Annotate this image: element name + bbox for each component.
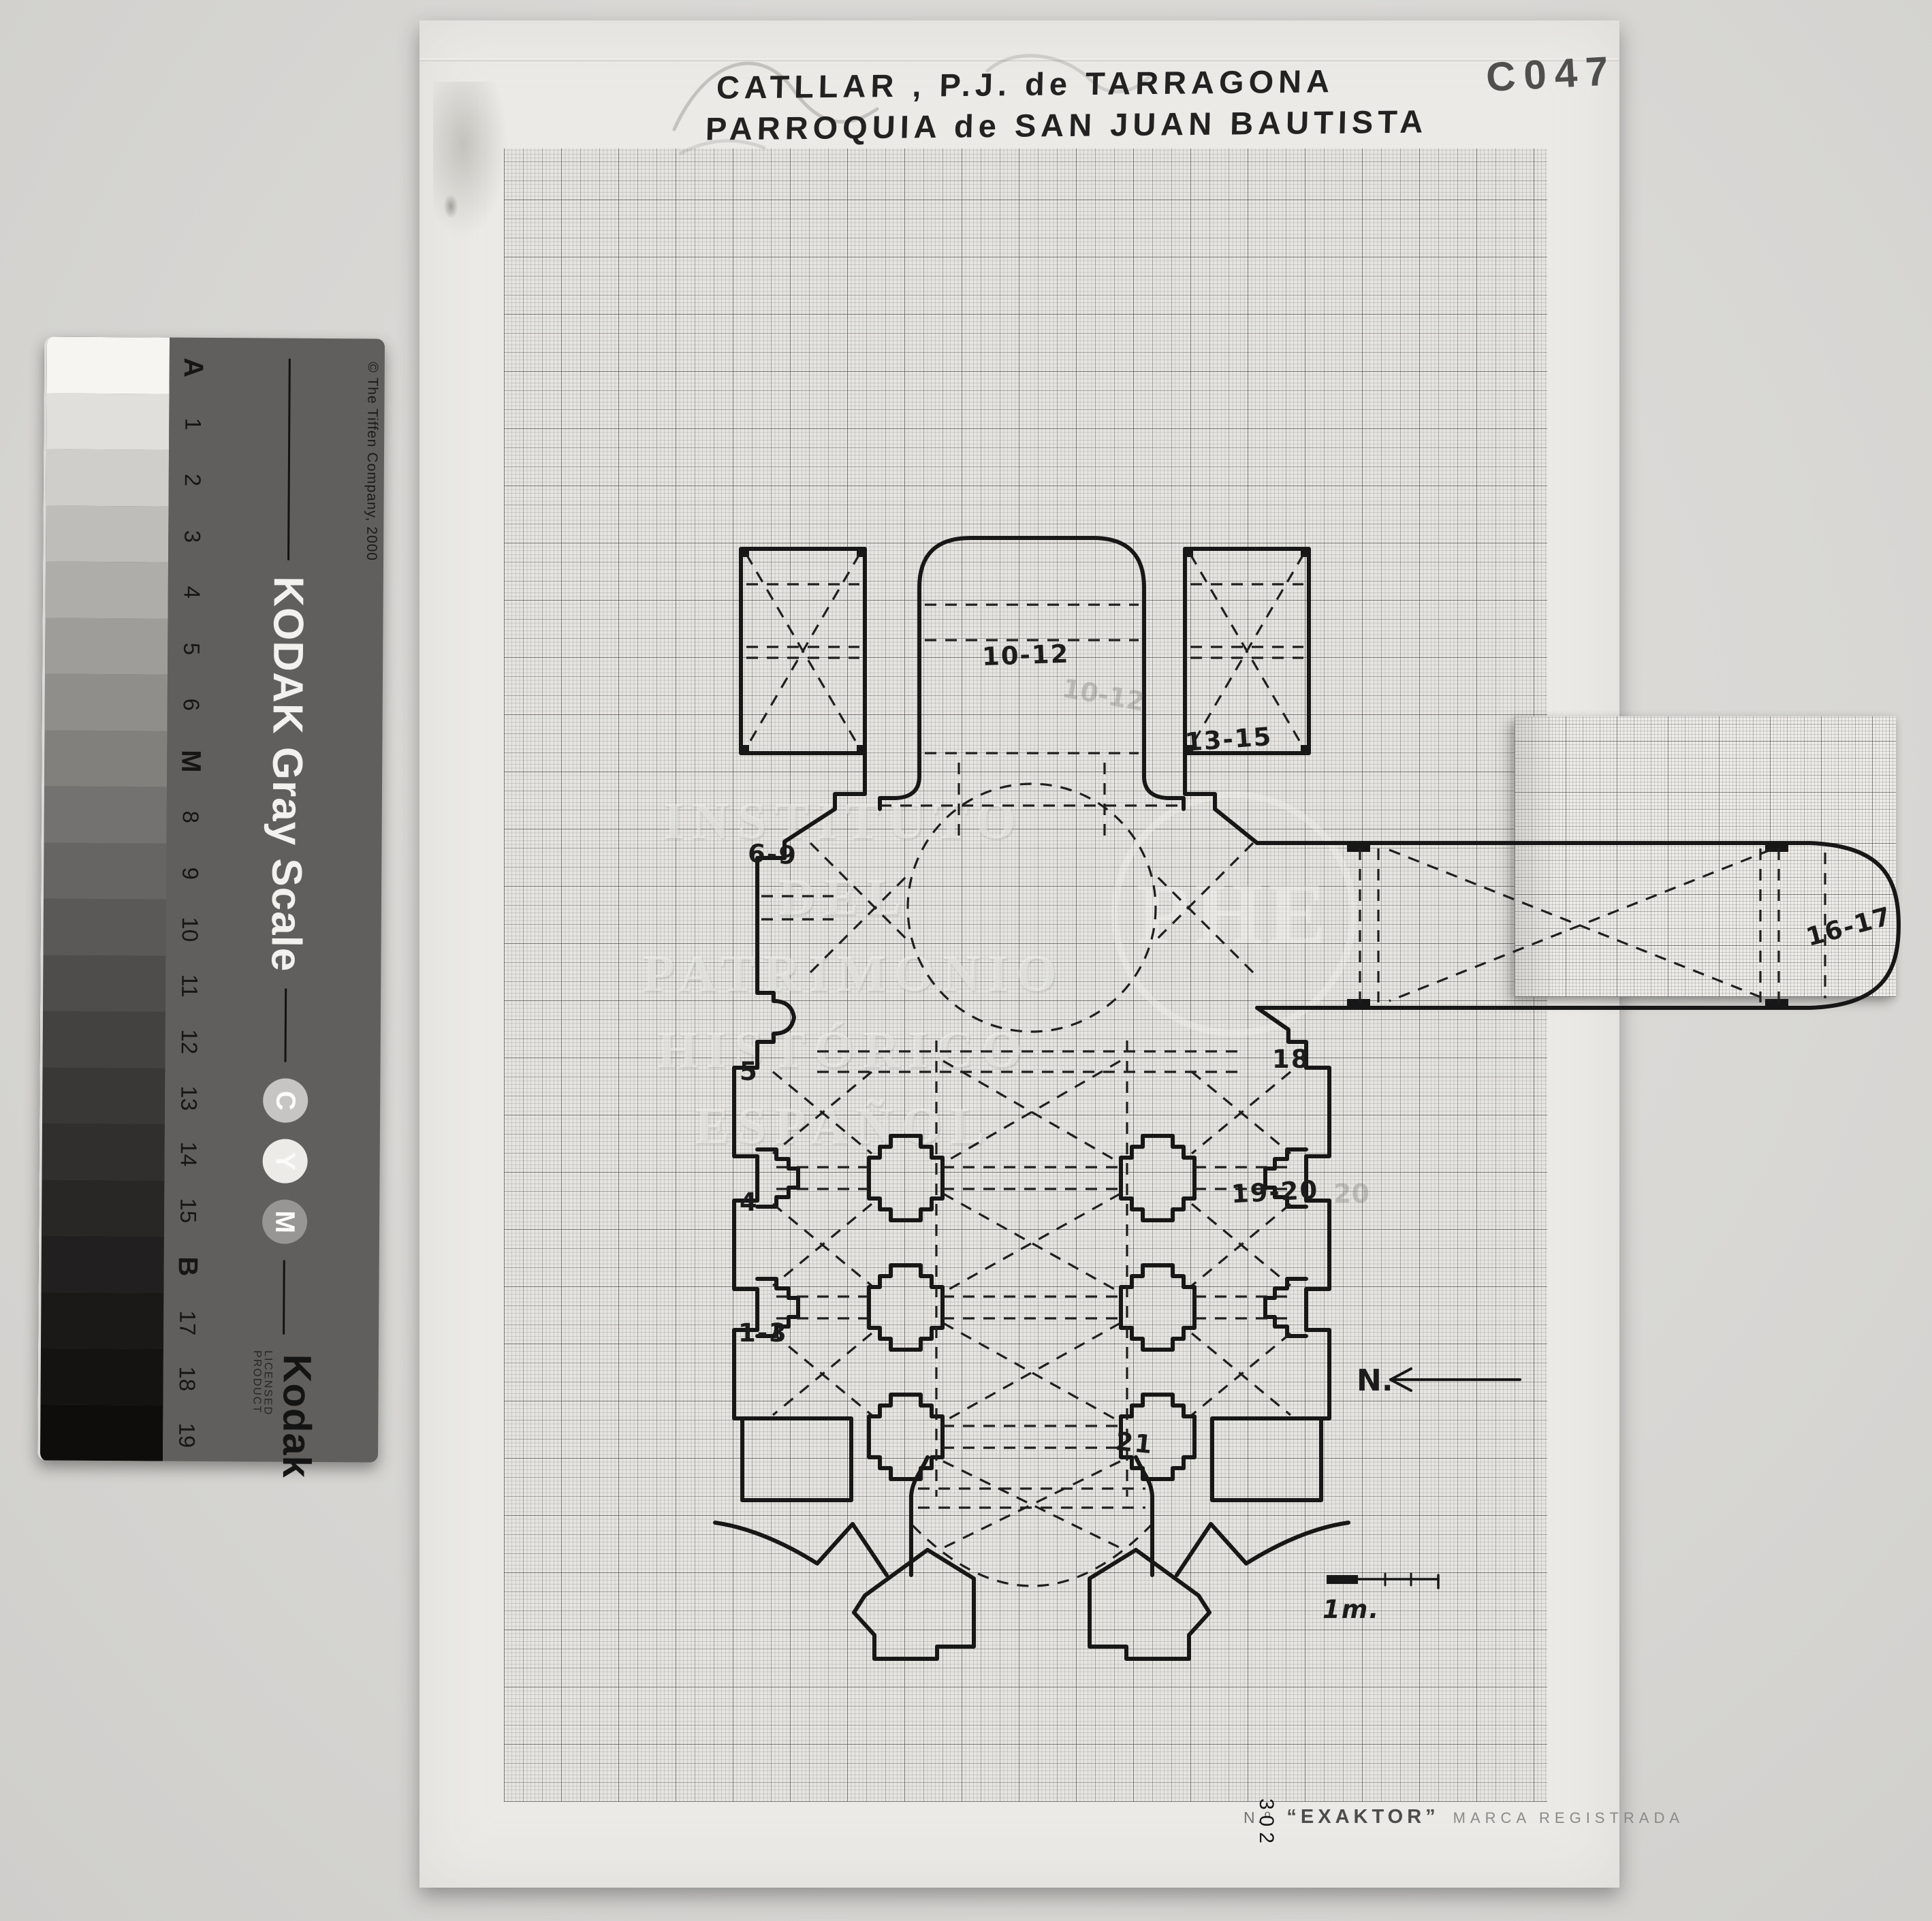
gray-patch [46,393,170,450]
brand-rule [283,1260,286,1334]
gray-patch [44,787,168,844]
cym-dot-y: Y [262,1139,307,1184]
patch-number: 12 [174,1019,204,1064]
patch-number: 14 [174,1132,204,1177]
gray-patch [44,730,168,787]
north-arrow-icon [1391,1369,1520,1391]
north-label: N. [1357,1363,1393,1398]
tiffen-copyright: © The Tiffen Company, 2000 [363,362,381,561]
cym-letter-c: C [270,1091,301,1111]
licensed-product-label: LICENSED PRODUCT [251,1350,273,1482]
card-branding: © The Tiffen Company, 2000 KODAK Gray Sc… [216,338,385,1462]
north-indicator: N. [1357,1363,1520,1398]
patch-number: 3 [177,514,207,559]
gray-patch [42,1067,165,1124]
plan-label-16-17: 16-17 [1803,901,1895,952]
gray-patch [42,1179,165,1237]
patch-number: 10 [175,907,205,952]
imprint-note: MARCA REGISTRADA [1453,1809,1684,1827]
plan-label-10-12: 10-12 [981,639,1070,671]
kodak-logo-block: Kodak LICENSED PRODUCT [251,1350,317,1482]
patch-number: A [178,345,208,390]
product-name: KODAK Gray Scale [262,576,313,972]
gray-patch [41,1292,164,1349]
patch-number: 1 [178,402,208,447]
scale-label: 1m. [1323,1595,1380,1624]
plan-ghost-label-10-12: 10-12 [1060,673,1147,716]
gray-patch [46,505,169,562]
plan-label-4: 4 [740,1188,759,1217]
patch-number: 18 [172,1356,202,1401]
cym-dot-m: M [262,1200,307,1244]
patch-number: 17 [172,1301,202,1346]
floor-plan: 10-12 13-15 6-9 16-17 5 18 4 19-20 1-3 2… [708,523,1907,1776]
plan-label-5: 5 [740,1057,759,1086]
gray-patch [44,842,167,900]
gray-patch [41,1235,164,1292]
kodak-logo: Kodak [276,1354,317,1478]
gray-patch [45,618,168,675]
gray-scale-card: A 1 2 3 4 5 6 M 8 9 10 11 12 13 14 15 B … [37,336,385,1462]
plan-labels-group: 10-12 13-15 6-9 16-17 5 18 4 19-20 1-3 2… [738,639,1895,1460]
patch-number: B [173,1244,203,1289]
plan-label-1-3: 1-3 [738,1318,788,1348]
gray-patch [43,955,166,1012]
patch-number: 4 [177,570,207,615]
plan-label-6-9: 6-9 [747,838,798,870]
walls-group [715,538,1899,1659]
patch-number: 6 [176,682,206,727]
gray-patch [42,1123,165,1180]
patch-number: M [176,739,206,784]
scale-bar: 1m. [1323,1574,1438,1624]
gray-patch [40,1404,163,1461]
patch-number: 19 [172,1413,202,1458]
patch-number: 8 [176,795,206,840]
gray-patch [40,1348,163,1405]
gray-patch [46,562,169,619]
patch-numbers: A 1 2 3 4 5 6 M 8 9 10 11 12 13 14 15 B … [164,338,216,1461]
gray-patches [37,336,170,1461]
patch-number: 11 [174,964,204,1009]
cym-dot-c: C [263,1079,308,1123]
patch-number: 5 [176,626,206,671]
brand-rule [285,988,287,1062]
plan-label-21: 21 [1114,1427,1155,1460]
paper-smudge [433,82,508,238]
imprint-brand: “EXAKTOR” [1286,1806,1439,1828]
manufacturer-imprint: N.º 302 “EXAKTOR” MARCA REGISTRADA [1244,1806,1684,1828]
gray-patch [42,1011,165,1068]
patch-number: 9 [175,851,205,896]
gray-patch [46,449,170,507]
plan-title-line2: PARROQUIA de SAN JUAN BAUTISTA [705,102,1428,147]
gray-patch [44,898,167,955]
photo-backdrop: INSTITUTO DEL PATRIMONIO HISTÓRICO ESPAÑ… [0,0,1932,1921]
gray-patch [45,674,168,731]
patch-number: 13 [174,1076,204,1121]
gray-patch [47,337,170,394]
plan-label-19-20: 19-20 [1231,1175,1319,1209]
cym-letter-y: Y [270,1152,300,1171]
plan-ghost-label-20: 20 [1333,1179,1369,1209]
archive-code: C047 [1485,47,1617,101]
paper-hole [444,195,458,218]
imprint-number: 302 [1251,1798,1281,1843]
cym-letter-m: M [270,1211,300,1234]
brand-rule [288,359,291,560]
plan-label-18: 18 [1272,1045,1310,1074]
plan-title-line1: CATLLAR , P.J. de TARRAGONA [716,62,1334,106]
plan-label-13-15: 13-15 [1184,722,1273,757]
patch-number: 15 [173,1188,203,1233]
patch-number: 2 [178,458,208,503]
